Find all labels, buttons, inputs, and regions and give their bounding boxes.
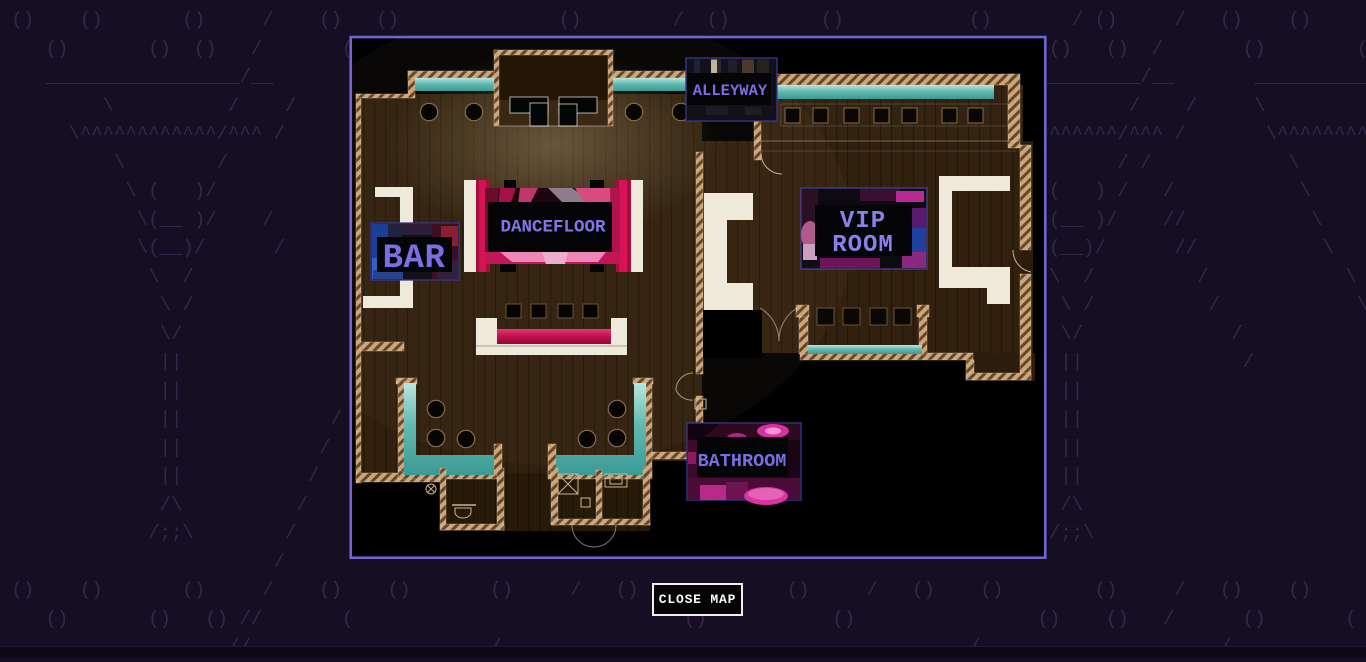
svg-text:ALLEYWAY: ALLEYWAY xyxy=(693,82,768,100)
svg-text:ROOM: ROOM xyxy=(832,232,894,259)
svg-text:DANCEFLOOR: DANCEFLOOR xyxy=(500,218,606,238)
svg-text:BAR: BAR xyxy=(383,240,446,278)
svg-text:VIP: VIP xyxy=(840,208,886,235)
svg-text:BATHROOM: BATHROOM xyxy=(698,451,787,472)
